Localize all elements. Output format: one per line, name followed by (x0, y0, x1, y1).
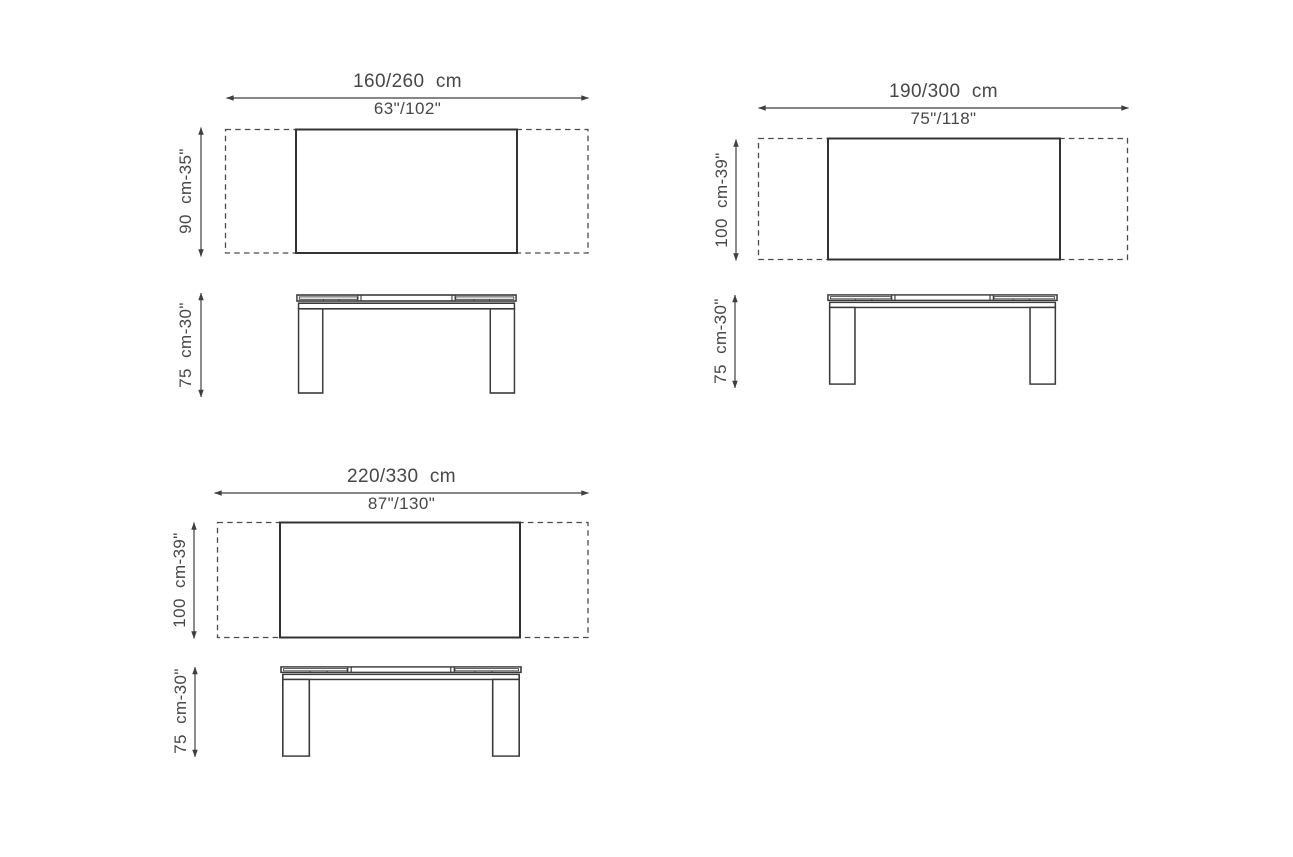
top-view (216, 521, 590, 640)
table-front-view (827, 294, 1058, 385)
width-cm-label: 190/300 cm (757, 80, 1130, 103)
width-inches-label: 75"/118" (757, 109, 1130, 129)
top-view (224, 128, 590, 255)
width-cm-label: 160/260 cm (225, 70, 590, 93)
table-front-view (296, 294, 517, 394)
depth-label: 100 cm-39" (170, 510, 190, 650)
top-view (757, 137, 1130, 261)
height-label: 75 cm-30" (711, 271, 731, 411)
dimension-sheet: 160/260 cm 63"/102" 90 cm-35" 75 cm-30" … (0, 0, 1293, 857)
width-inches-label: 63"/102" (225, 99, 590, 119)
depth-label: 90 cm-35" (176, 121, 196, 261)
width-inches-label: 87"/130" (213, 494, 590, 514)
closed-top-rect (828, 139, 1060, 260)
height-arrow (195, 291, 207, 399)
closed-top-rect (280, 523, 520, 638)
table-front-view (280, 666, 522, 757)
height-label: 75 cm-30" (176, 275, 196, 415)
width-cm-label: 220/330 cm (213, 465, 590, 488)
depth-label: 100 cm-39" (712, 130, 732, 270)
height-label: 75 cm-30" (171, 641, 191, 781)
closed-top-rect (296, 130, 517, 254)
depth-arrow (195, 126, 207, 258)
